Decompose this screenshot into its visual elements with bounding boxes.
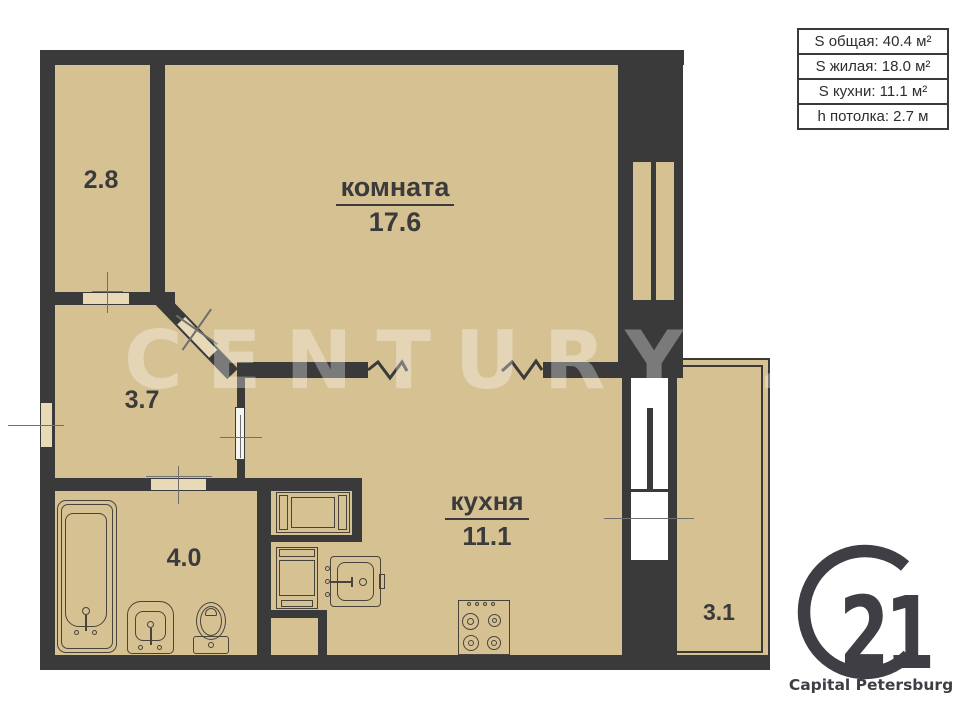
toilet-flush-detail xyxy=(205,608,217,616)
bathtub-valve-2 xyxy=(92,630,97,635)
dim-closet-door-h xyxy=(92,291,123,292)
wall-vent-bottom xyxy=(271,535,362,542)
century21-watermark: CENTURY 21 xyxy=(124,314,918,407)
kitchen-sink-knob-3 xyxy=(325,592,330,597)
stove-knob-2 xyxy=(475,602,479,606)
dim-entrance-door-h xyxy=(8,425,64,426)
bathtub-faucet-stem xyxy=(85,615,87,631)
label-balcony-area: 3.1 xyxy=(691,599,747,626)
info-living-area: S жилая: 18.0 м² xyxy=(797,53,949,80)
living-window-pane-2 xyxy=(656,162,674,300)
dim-kitchen-door-v xyxy=(240,415,241,458)
stove-burner-3-inner xyxy=(468,640,474,646)
label-kitchen: кухня 11.1 xyxy=(417,486,557,552)
wall-left xyxy=(40,50,55,670)
appliance-top xyxy=(279,549,315,557)
sink-valve-2 xyxy=(157,645,162,650)
vent-duct-left xyxy=(279,495,288,530)
sink-valve-1 xyxy=(138,645,143,650)
sink-drain xyxy=(147,621,154,628)
label-living-room: комната 17.6 xyxy=(325,172,465,238)
kitchen-sink-knob-1 xyxy=(325,566,330,571)
info-total-area: S общая: 40.4 м² xyxy=(797,28,949,55)
vent-duct-right xyxy=(338,495,347,530)
floor-plan: CENTURY 21 комната 17.6 кухня 11.1 2.8 3… xyxy=(0,0,960,720)
living-room-name: комната xyxy=(336,172,455,206)
century21-logo: 21 Capital Petersburg xyxy=(788,533,960,705)
dim-kitchen-door-h xyxy=(220,437,262,438)
kitchen-window-mullion xyxy=(647,408,653,490)
living-window-pane-1 xyxy=(633,162,651,300)
logo-subtitle: Capital Petersburg xyxy=(789,676,953,694)
stove-knob-1 xyxy=(467,602,471,606)
kitchen-sink-faucet xyxy=(330,581,352,583)
wall-top xyxy=(40,50,684,65)
kitchen-sink-faucet-cap xyxy=(351,577,353,587)
wall-bottom xyxy=(40,655,770,670)
living-room-area: 17.6 xyxy=(325,207,465,238)
info-kitchen-area: S кухни: 11.1 м² xyxy=(797,78,949,105)
wall-shaft-right xyxy=(318,610,327,655)
wall-vent-right xyxy=(352,478,362,542)
dim-balcony-sill xyxy=(604,518,694,519)
kitchen-area: 11.1 xyxy=(417,521,557,552)
wall-bathroom-right xyxy=(257,491,271,655)
appliance-mid xyxy=(279,560,315,596)
stove-knob-3 xyxy=(483,602,487,606)
kitchen-sink-drain xyxy=(359,578,367,586)
toilet-tank-button xyxy=(208,642,214,648)
sink-stem xyxy=(150,628,152,645)
dim-closet-door-v xyxy=(107,272,108,313)
dim-bath-door-v xyxy=(178,466,179,504)
stove-burner-4-inner xyxy=(491,640,497,646)
label-bathroom-area: 4.0 xyxy=(156,544,212,573)
kitchen-sink-knob-2 xyxy=(325,579,330,584)
kitchen-sink-tab xyxy=(379,574,385,589)
label-hallway-area: 3.7 xyxy=(114,386,170,415)
stove-knob-4 xyxy=(491,602,495,606)
info-ceiling-height: h потолка: 2.7 м xyxy=(797,103,949,130)
appliance-bottom xyxy=(281,600,313,607)
door-closet xyxy=(82,292,130,305)
logo-number: 21 xyxy=(839,575,931,692)
wall-kitchen-right-solid xyxy=(622,560,677,655)
stove-burner-1-inner xyxy=(467,618,474,625)
area-info-box: S общая: 40.4 м² S жилая: 18.0 м² S кухн… xyxy=(797,28,949,130)
wall-bathroom-top xyxy=(52,478,362,491)
wall-closet-right xyxy=(150,65,165,293)
label-closet-area: 2.8 xyxy=(73,166,129,195)
bathtub-faucet xyxy=(82,607,90,615)
bathtub-valve-1 xyxy=(74,630,79,635)
dim-bath-door-h xyxy=(146,476,212,477)
stove-burner-2-inner xyxy=(492,618,497,623)
vent-duct-center xyxy=(291,497,335,528)
kitchen-name: кухня xyxy=(445,486,528,520)
